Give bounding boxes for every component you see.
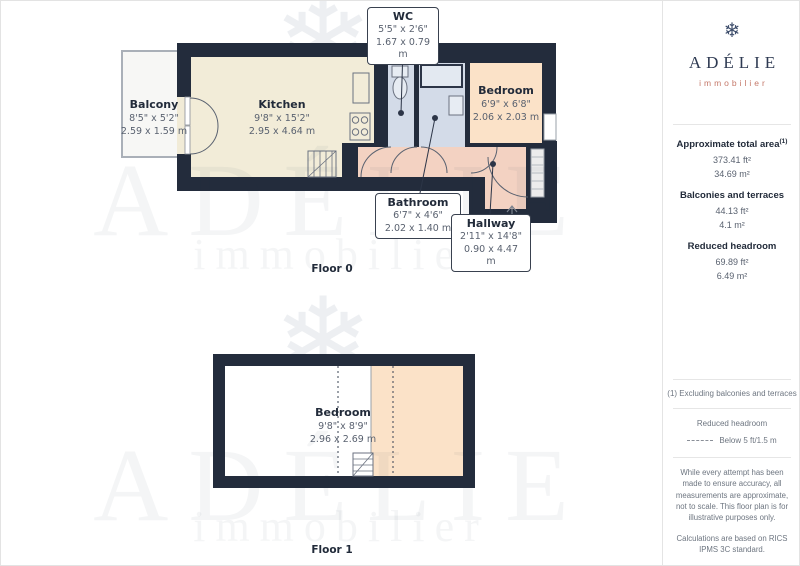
divider [673,124,791,125]
floorplan-page: ❄ ❄ [0,0,800,566]
floor0-stairs [308,151,336,177]
callout-hallway: Hallway 2'11" x 14'8" 0.90 x 4.47 m [451,214,531,272]
area-total-m: 34.69 m² [663,168,800,182]
area-balconies-ft: 44.13 ft² [663,205,800,219]
plans-area: ❄ ❄ [1,1,663,566]
shower-icon [421,65,462,87]
divider [673,408,791,409]
floor1-plan [213,354,475,488]
callout-wc: WC 5'5" x 2'6" 1.67 x 0.79 m [367,7,439,65]
area-footnote: (1) Excluding balconies and terraces [663,389,800,398]
calculation-standard-text: Calculations are based on RICS IPMS 3C s… [675,533,789,556]
legend-row: Below 5 ft/1.5 m [663,436,800,445]
area-balconies-m: 4.1 m² [663,219,800,233]
floor0-caption: Floor 0 [282,263,382,275]
toilet-icon [392,66,408,99]
area-total-ft: 373.41 ft² [663,154,800,168]
area-reduced-m: 6.49 m² [663,270,800,284]
floor1-caption: Floor 1 [282,544,382,556]
floor1-stairs [353,453,373,476]
divider [673,379,791,380]
area-total: Approximate total area(1) 373.41 ft² 34.… [663,138,800,181]
floorplan-graphics [1,1,663,566]
divider [673,457,791,458]
callout-bathroom: Bathroom 6'7" x 4'6" 2.02 x 1.40 m [375,193,461,239]
sidebar: ❄ ADÉLIE immobilier Approximate total ar… [662,1,800,566]
brand-logo: ❄ ADÉLIE immobilier [663,1,800,88]
floor0-plan [122,43,557,223]
disclaimer-text: While every attempt has been made to ens… [673,467,791,523]
sink-icon [449,96,463,115]
brand-name: ADÉLIE [663,53,800,73]
area-reduced-headroom: Reduced headroom 69.89 ft² 6.49 m² [663,241,800,283]
legend-title: Reduced headroom [663,419,800,428]
legend-item-label: Below 5 ft/1.5 m [719,436,776,445]
brand-snowflake-icon: ❄ [663,21,800,41]
area-summary: Approximate total area(1) 373.41 ft² 34.… [663,138,800,283]
area-balconies: Balconies and terraces 44.13 ft² 4.1 m² [663,190,800,232]
dashed-line-icon [687,440,713,441]
brand-tagline: immobilier [663,78,800,88]
area-reduced-ft: 69.89 ft² [663,256,800,270]
